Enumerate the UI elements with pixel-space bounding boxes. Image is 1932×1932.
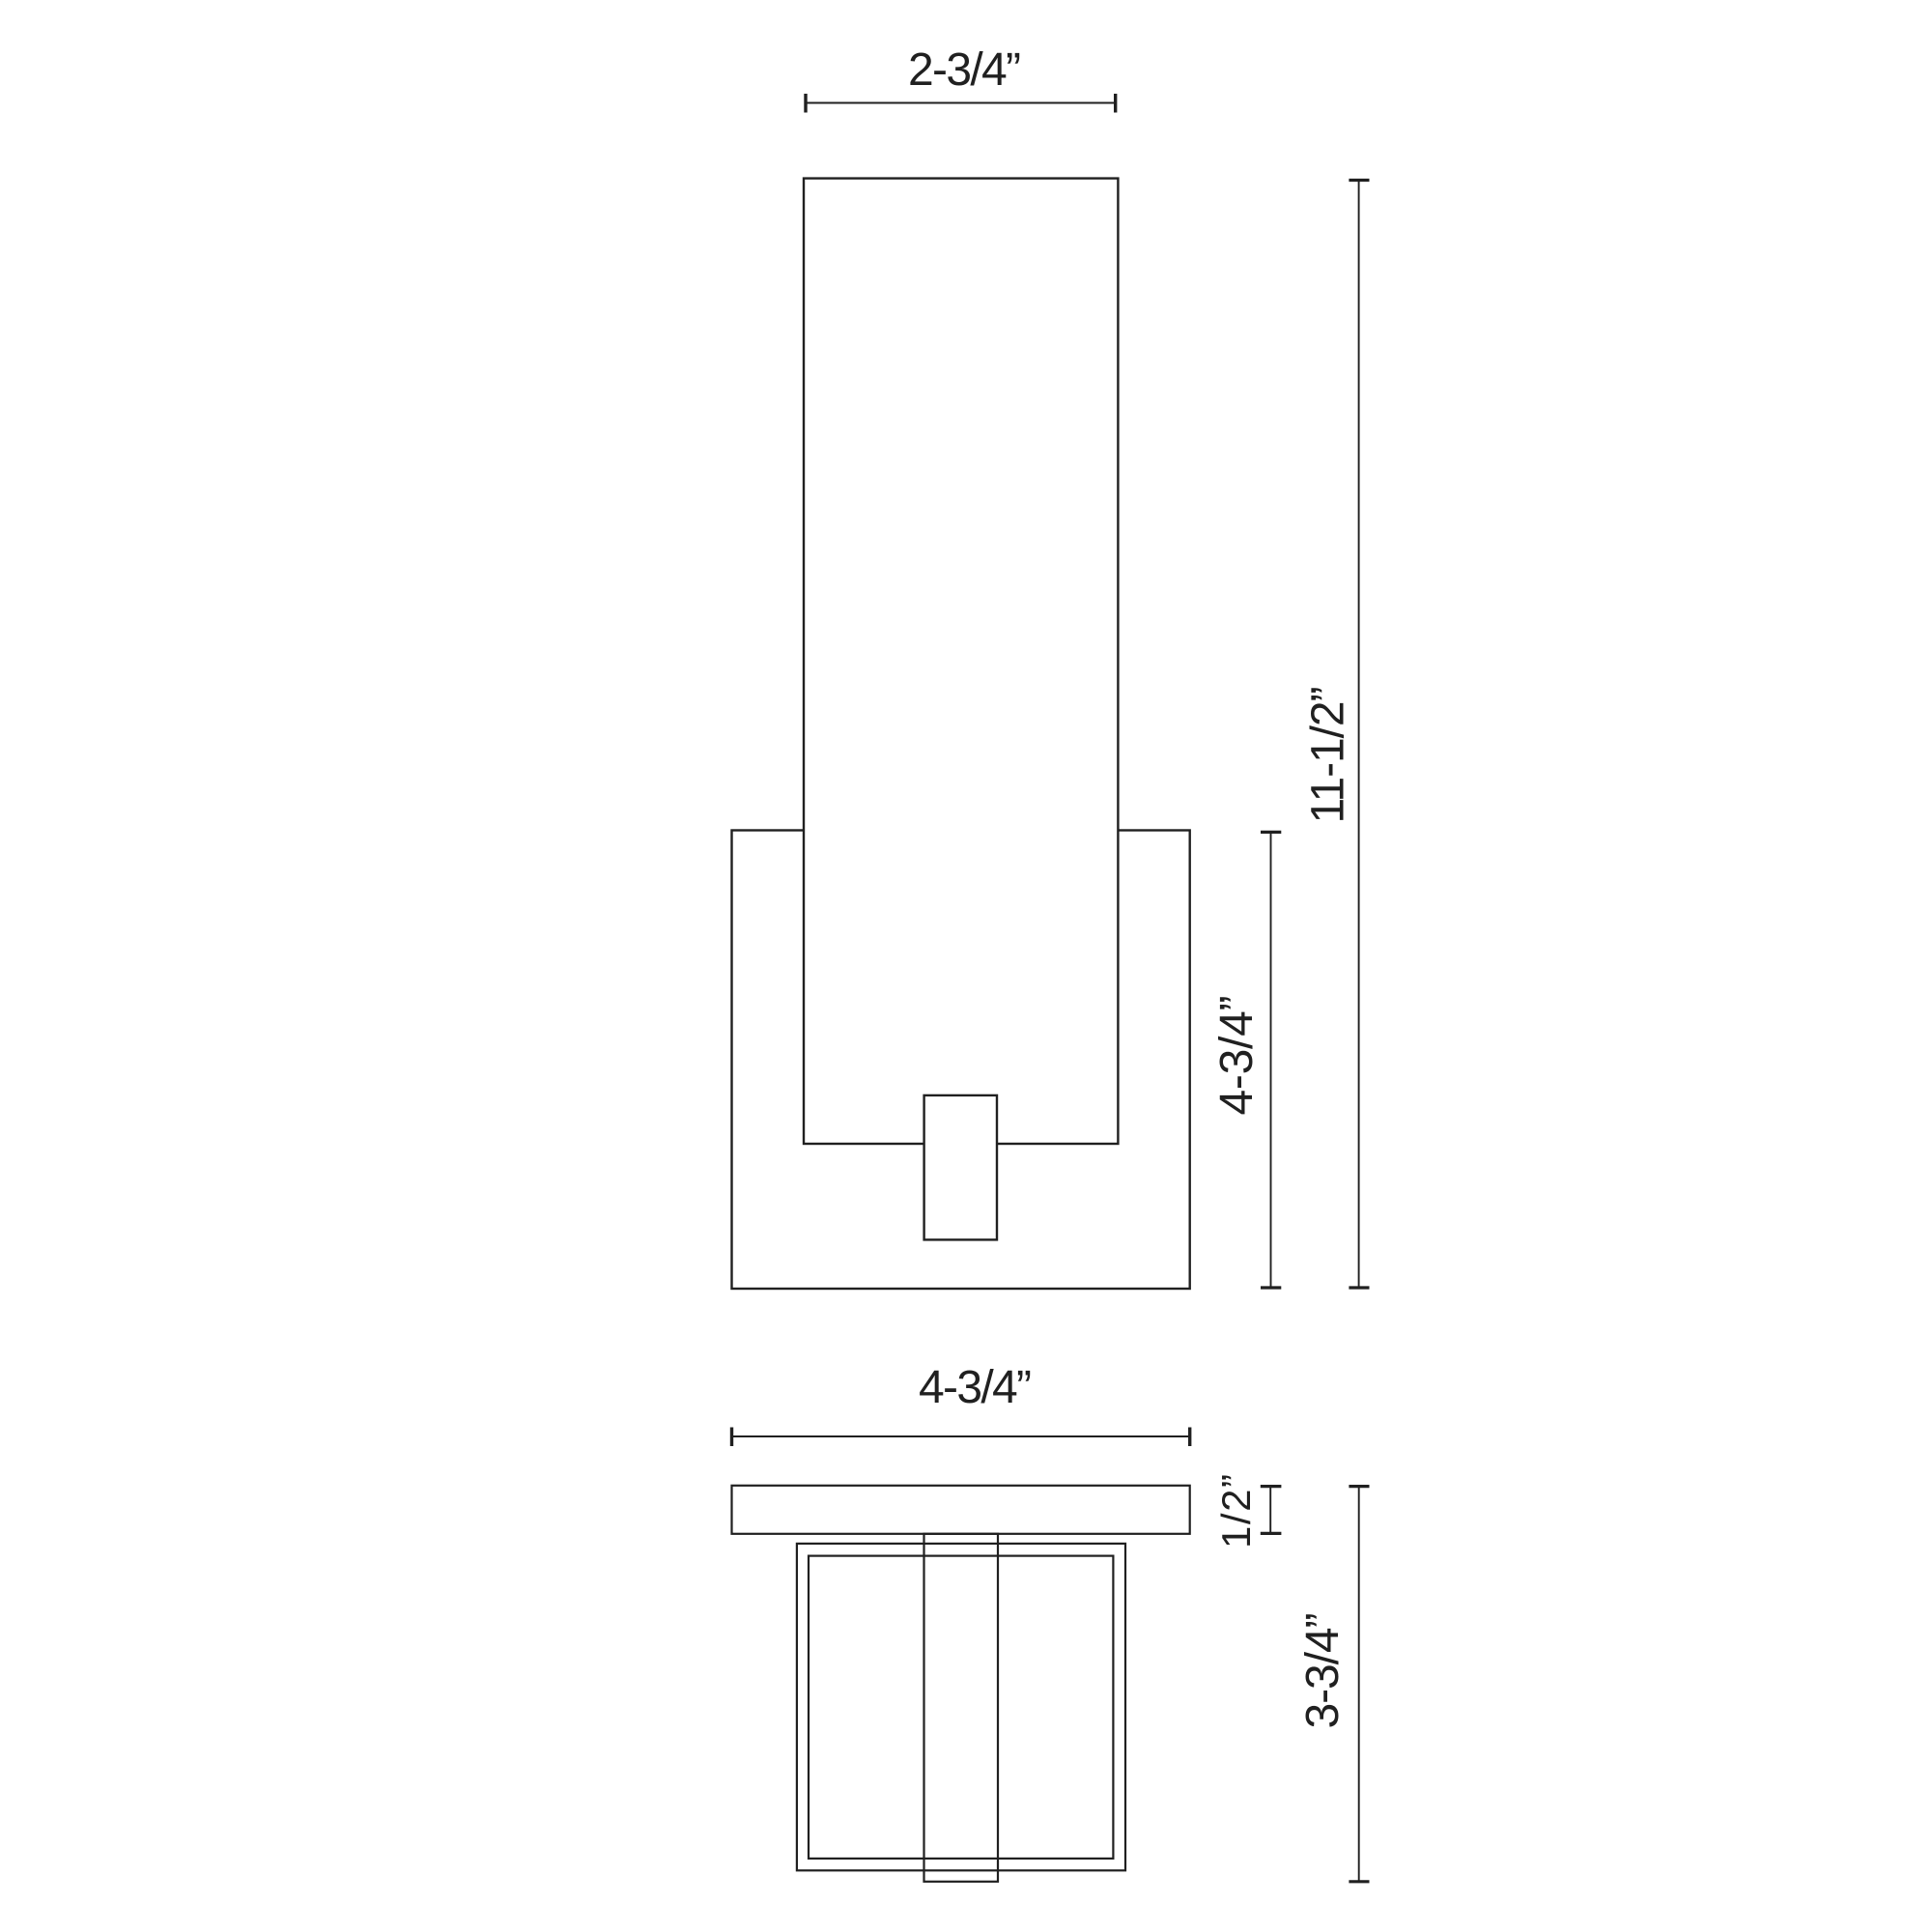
svg-text:1/2”: 1/2” <box>1213 1474 1259 1548</box>
svg-text:3-3/4”: 3-3/4” <box>1297 1613 1349 1729</box>
svg-text:4-3/4”: 4-3/4” <box>919 1362 1032 1413</box>
svg-text:2-3/4”: 2-3/4” <box>908 44 1021 96</box>
svg-text:4-3/4”: 4-3/4” <box>1211 996 1263 1116</box>
svg-text:11-1/2”: 11-1/2” <box>1303 687 1354 824</box>
